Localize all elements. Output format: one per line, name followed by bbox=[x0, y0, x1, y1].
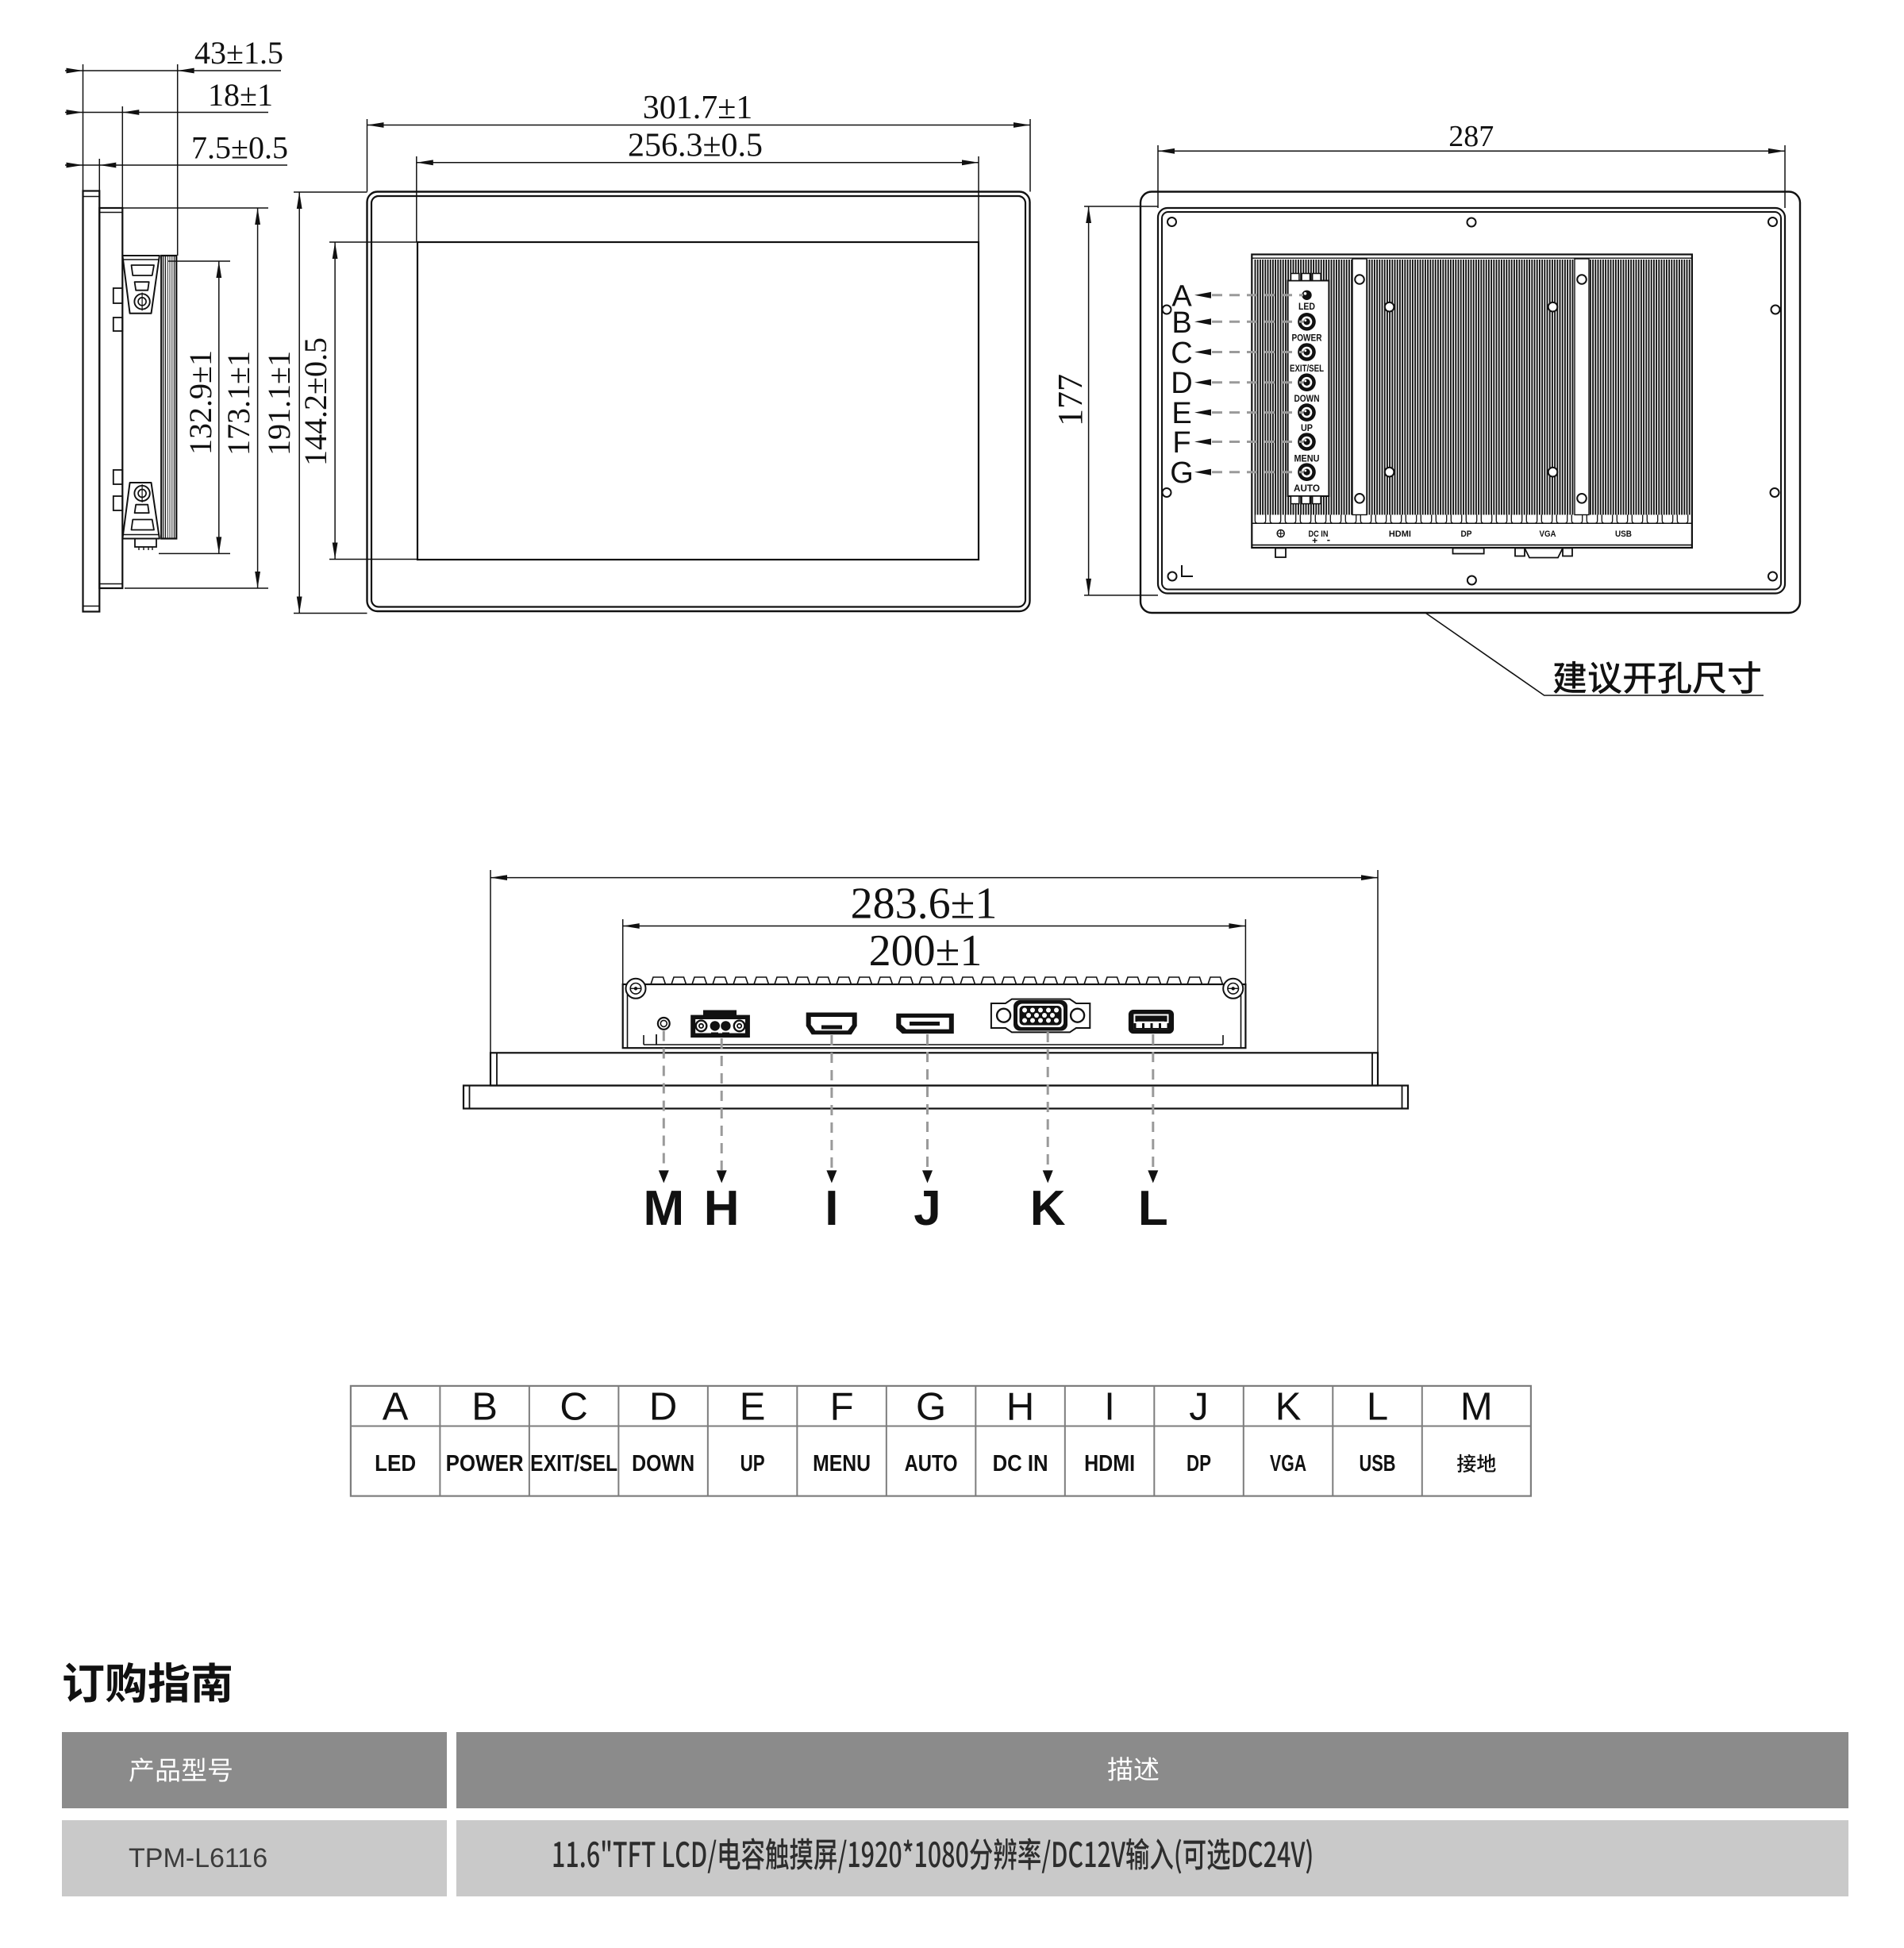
svg-text:AUTO: AUTO bbox=[905, 1451, 958, 1476]
svg-text:F: F bbox=[830, 1385, 854, 1428]
svg-text:G: G bbox=[1170, 456, 1194, 490]
svg-text:L: L bbox=[1138, 1181, 1168, 1236]
svg-text:TPM-L6116: TPM-L6116 bbox=[129, 1843, 267, 1873]
svg-text:DOWN: DOWN bbox=[632, 1451, 694, 1476]
svg-text:200±1: 200±1 bbox=[869, 926, 983, 976]
svg-text:I: I bbox=[825, 1181, 838, 1236]
svg-text:DOWN: DOWN bbox=[1294, 395, 1320, 404]
svg-text:B: B bbox=[1171, 306, 1191, 340]
svg-text:283.6±1: 283.6±1 bbox=[851, 880, 998, 929]
svg-text:H: H bbox=[1006, 1385, 1034, 1428]
svg-text:132.9±1: 132.9±1 bbox=[183, 350, 218, 455]
svg-text:E: E bbox=[740, 1385, 766, 1428]
svg-text:DP: DP bbox=[1461, 529, 1472, 539]
svg-text:43±1.5: 43±1.5 bbox=[194, 35, 283, 71]
svg-text:UP: UP bbox=[740, 1451, 765, 1476]
svg-text:D: D bbox=[649, 1385, 677, 1428]
svg-text:173.1±1: 173.1±1 bbox=[221, 351, 256, 456]
svg-text:301.7±1: 301.7±1 bbox=[643, 90, 753, 126]
svg-text:LED: LED bbox=[1298, 302, 1315, 312]
svg-text:-: - bbox=[1327, 533, 1330, 545]
svg-text:EXIT/SEL: EXIT/SEL bbox=[530, 1451, 617, 1476]
svg-text:D: D bbox=[1171, 367, 1192, 400]
svg-text:K: K bbox=[1030, 1181, 1066, 1236]
svg-text:144.2±0.5: 144.2±0.5 bbox=[298, 337, 333, 466]
svg-text:G: G bbox=[916, 1385, 946, 1428]
svg-text:C: C bbox=[560, 1385, 587, 1428]
svg-text:7.5±0.5: 7.5±0.5 bbox=[191, 130, 288, 166]
svg-text:191.1±1: 191.1±1 bbox=[261, 351, 297, 456]
svg-text:M: M bbox=[643, 1181, 684, 1236]
svg-text:VGA: VGA bbox=[1540, 529, 1556, 539]
svg-text:USB: USB bbox=[1615, 529, 1632, 539]
svg-text:M: M bbox=[1460, 1385, 1493, 1428]
svg-text:USB: USB bbox=[1360, 1451, 1396, 1476]
svg-text:MENU: MENU bbox=[1294, 455, 1320, 464]
svg-text:C: C bbox=[1171, 337, 1192, 370]
svg-text:E: E bbox=[1171, 397, 1191, 430]
svg-text:B: B bbox=[471, 1385, 498, 1428]
svg-text:287: 287 bbox=[1448, 120, 1494, 153]
svg-text:H: H bbox=[704, 1181, 740, 1236]
svg-text:I: I bbox=[1104, 1385, 1115, 1428]
svg-text:MENU: MENU bbox=[813, 1451, 871, 1476]
svg-text:POWER: POWER bbox=[1292, 333, 1323, 343]
svg-text:AUTO: AUTO bbox=[1294, 484, 1320, 494]
svg-text:VGA: VGA bbox=[1270, 1451, 1306, 1476]
svg-text:18±1: 18±1 bbox=[208, 77, 273, 113]
svg-text:177: 177 bbox=[1051, 374, 1090, 426]
svg-text:HDMI: HDMI bbox=[1084, 1451, 1135, 1476]
svg-text:HDMI: HDMI bbox=[1389, 529, 1411, 539]
svg-text:UP: UP bbox=[1301, 424, 1313, 433]
svg-text:+: + bbox=[1312, 535, 1317, 546]
svg-text:L: L bbox=[1367, 1385, 1388, 1428]
svg-text:A: A bbox=[383, 1385, 409, 1428]
svg-text:F: F bbox=[1172, 426, 1190, 460]
svg-text:DC IN: DC IN bbox=[993, 1451, 1048, 1476]
svg-text:DP: DP bbox=[1187, 1451, 1211, 1476]
svg-text:EXIT/SEL: EXIT/SEL bbox=[1290, 364, 1324, 374]
svg-text:J: J bbox=[914, 1181, 940, 1236]
svg-text:LED: LED bbox=[375, 1451, 416, 1476]
svg-text:POWER: POWER bbox=[446, 1451, 524, 1476]
svg-text:256.3±0.5: 256.3±0.5 bbox=[628, 128, 763, 164]
svg-text:K: K bbox=[1275, 1385, 1302, 1428]
svg-text:J: J bbox=[1189, 1385, 1209, 1428]
